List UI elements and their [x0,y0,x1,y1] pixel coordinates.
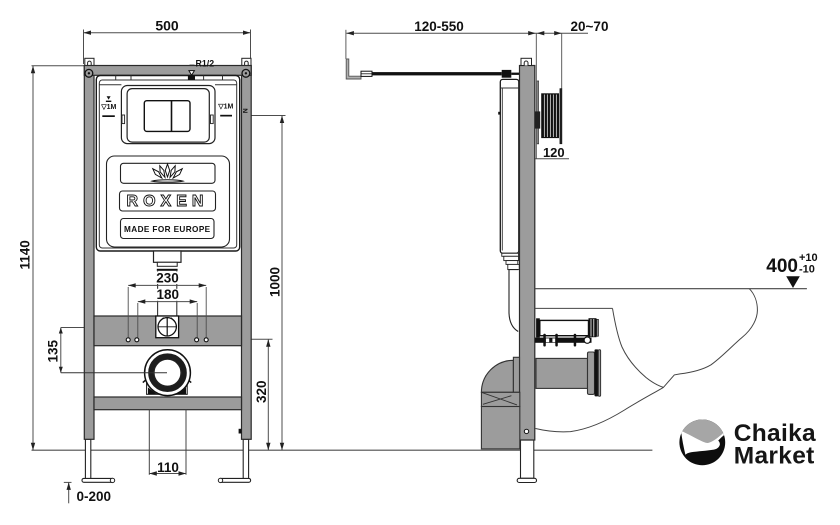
svg-text:320: 320 [254,380,269,403]
svg-text:0-200: 0-200 [77,489,112,504]
svg-text:500: 500 [155,18,179,34]
svg-text:ROXEN: ROXEN [127,193,209,210]
svg-text:▽1M: ▽1M [100,104,116,111]
svg-text:1000: 1000 [268,267,283,297]
svg-text:180: 180 [157,287,180,302]
svg-text:135: 135 [46,339,61,362]
svg-text:-10: -10 [799,263,815,275]
svg-text:1140: 1140 [18,240,33,269]
svg-text:110: 110 [157,460,179,475]
svg-text:MADE FOR EUROPE: MADE FOR EUROPE [124,225,211,234]
svg-text:400: 400 [766,256,798,277]
svg-text:Market: Market [734,443,815,470]
svg-text:120: 120 [543,145,565,160]
svg-text:230: 230 [156,270,179,285]
svg-text:▽1M: ▽1M [217,103,233,110]
svg-text:+10: +10 [799,252,818,264]
svg-text:N: N [241,108,248,113]
svg-text:R1/2: R1/2 [196,58,215,68]
svg-text:20~70: 20~70 [571,19,609,34]
svg-text:120-550: 120-550 [414,19,464,34]
